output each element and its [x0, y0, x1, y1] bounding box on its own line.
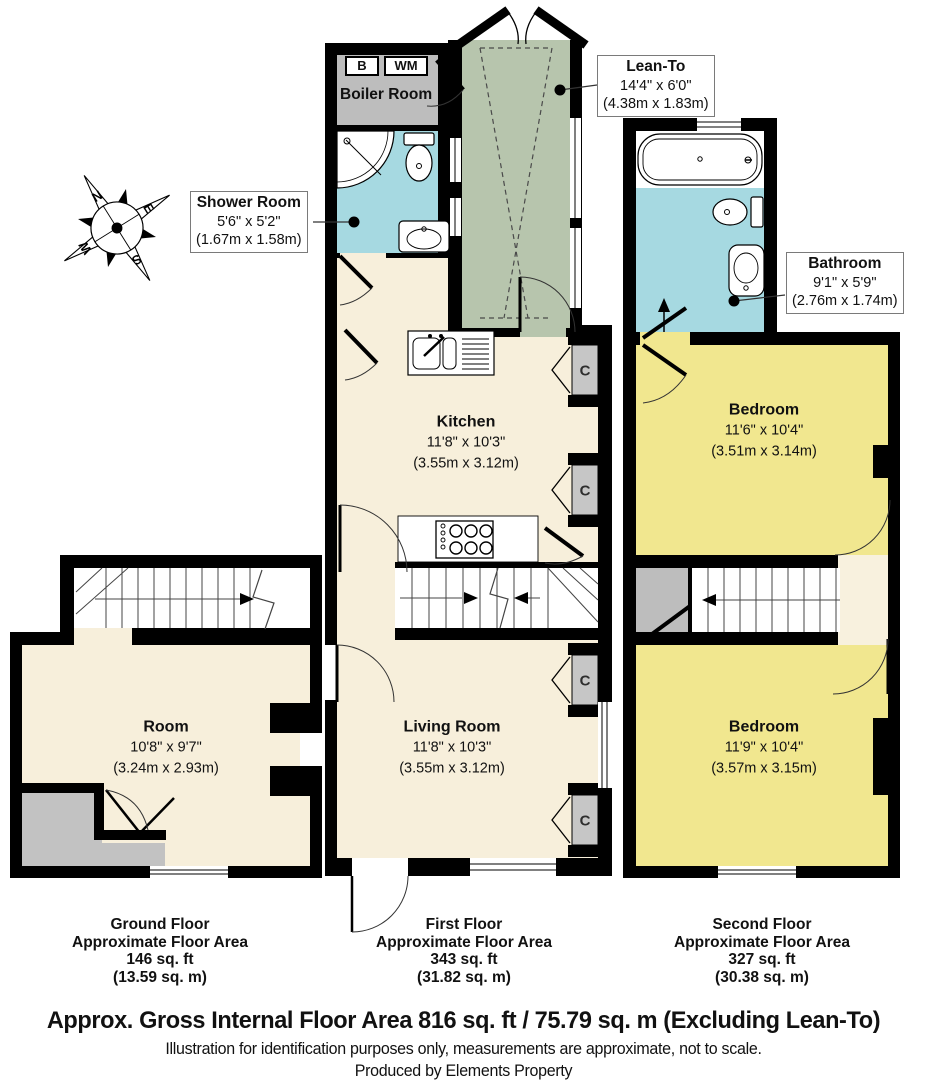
- bath-icon: [638, 134, 762, 185]
- boiler-wm-box: WM: [384, 56, 428, 76]
- living-room-name: Living Room: [399, 717, 505, 738]
- shower-room-name: Shower Room: [196, 194, 302, 213]
- basin-icon: [729, 245, 764, 296]
- bathroom-name: Bathroom: [792, 255, 898, 274]
- cupboard-label: C: [580, 483, 591, 500]
- boiler-b-label: B: [357, 58, 366, 73]
- chimney-notch: [873, 445, 900, 478]
- chimney-notch: [270, 766, 322, 796]
- kitchen-name: Kitchen: [413, 412, 519, 433]
- chimney-notch: [270, 703, 322, 733]
- boiler-b-box: B: [345, 56, 379, 76]
- shower-room-dims-m: (1.67m x 1.58m): [196, 231, 302, 250]
- lean-to-name: Lean-To: [603, 58, 709, 77]
- second-floor-area-m: (30.38 sq. m): [612, 969, 912, 987]
- room-window: [147, 866, 231, 878]
- lean-to-floor: [462, 40, 570, 328]
- bedroom2-dims-m: (3.57m x 3.15m): [711, 759, 817, 780]
- room-name: Room: [113, 717, 219, 738]
- second-floor-title: Second Floor: [612, 916, 912, 934]
- bedroom1-name: Bedroom: [711, 400, 817, 421]
- ground-floor-title: Ground Floor: [10, 916, 310, 934]
- first-floor-caption: First Floor Approximate Floor Area 343 s…: [314, 916, 614, 986]
- first-floor-area-m: (31.82 sq. m): [314, 969, 614, 987]
- living-room-label: Living Room 11'8" x 10'3" (3.55m x 3.12m…: [399, 717, 505, 780]
- floor-plan-page: N E S W B WM Boiler Room Shower Room 5'6…: [0, 0, 927, 1080]
- bedroom1-label: Bedroom 11'6" x 10'4" (3.51m x 3.14m): [711, 400, 817, 463]
- boiler-wm-label: WM: [394, 58, 417, 73]
- lean-to-dims-ft: 14'4" x 6'0": [603, 77, 709, 96]
- bedroom1-dims-m: (3.51m x 3.14m): [711, 442, 817, 463]
- ground-floor-staircase: [74, 568, 310, 629]
- cupboard-label: C: [580, 363, 591, 380]
- living-room-dims-m: (3.55m x 3.12m): [399, 759, 505, 780]
- basin-icon: [399, 221, 449, 252]
- first-floor-area-ft: 343 sq. ft: [314, 951, 614, 969]
- bedroom2-label: Bedroom 11'9" x 10'4" (3.57m x 3.15m): [711, 717, 817, 780]
- lean-to-gable-doors: [458, 10, 586, 45]
- bathroom-dims-ft: 9'1" x 5'9": [792, 274, 898, 293]
- second-floor-staircase: [636, 568, 888, 632]
- bedroom2-dims-ft: 11'9" x 10'4": [711, 738, 817, 759]
- cupboard-label: C: [580, 813, 591, 830]
- second-floor-subtitle: Approximate Floor Area: [612, 934, 912, 952]
- first-floor-subtitle: Approximate Floor Area: [314, 934, 614, 952]
- bedroom1-dims-ft: 11'6" x 10'4": [711, 421, 817, 442]
- first-floor-staircase: [395, 568, 598, 628]
- disclaimer-text: Illustration for identification purposes…: [14, 1040, 913, 1059]
- room-label: Room 10'8" x 9'7" (3.24m x 2.93m): [113, 717, 219, 780]
- producer-text: Produced by Elements Property: [14, 1062, 913, 1080]
- living-room-side-window: [598, 699, 612, 791]
- first-floor-title: First Floor: [314, 916, 614, 934]
- ground-floor-area-m: (13.59 sq. m): [10, 969, 310, 987]
- bathroom-dims-m: (2.76m x 1.74m): [792, 292, 898, 311]
- kitchen-dims-m: (3.55m x 3.12m): [413, 454, 519, 475]
- kitchen-sink-icon: [408, 331, 494, 375]
- chimney-notch: [873, 718, 900, 795]
- shower-room-callout: Shower Room 5'6" x 5'2" (1.67m x 1.58m): [190, 191, 308, 253]
- lean-to-dims-m: (4.38m x 1.83m): [603, 95, 709, 114]
- ground-floor-subtitle: Approximate Floor Area: [10, 934, 310, 952]
- bathroom-callout: Bathroom 9'1" x 5'9" (2.76m x 1.74m): [786, 252, 904, 314]
- living-room-window: [467, 858, 559, 876]
- lean-to-callout: Lean-To 14'4" x 6'0" (4.38m x 1.83m): [597, 55, 715, 117]
- second-floor-area-ft: 327 sq. ft: [612, 951, 912, 969]
- boiler-room-label: Boiler Room: [340, 86, 432, 104]
- kitchen-label: Kitchen 11'8" x 10'3" (3.55m x 3.12m): [413, 412, 519, 475]
- second-floor-caption: Second Floor Approximate Floor Area 327 …: [612, 916, 912, 986]
- bathroom-window: [694, 118, 744, 131]
- hob-icon: [398, 516, 538, 562]
- compass-rose-icon: N E S W: [32, 143, 203, 314]
- room-dims-m: (3.24m x 2.93m): [113, 759, 219, 780]
- living-room-dims-ft: 11'8" x 10'3": [399, 738, 505, 759]
- ground-floor-area-ft: 146 sq. ft: [10, 951, 310, 969]
- bedroom2-name: Bedroom: [711, 717, 817, 738]
- kitchen-dims-ft: 11'8" x 10'3": [413, 433, 519, 454]
- toilet-icon: [713, 197, 763, 227]
- ground-floor-caption: Ground Floor Approximate Floor Area 146 …: [10, 916, 310, 986]
- bedroom2-window: [715, 866, 799, 878]
- gross-area-text: Approx. Gross Internal Floor Area 816 sq…: [9, 1007, 917, 1035]
- cupboard-label: C: [580, 673, 591, 690]
- room-dims-ft: 10'8" x 9'7": [113, 738, 219, 759]
- shower-room-dims-ft: 5'6" x 5'2": [196, 213, 302, 232]
- toilet-icon: [404, 133, 434, 181]
